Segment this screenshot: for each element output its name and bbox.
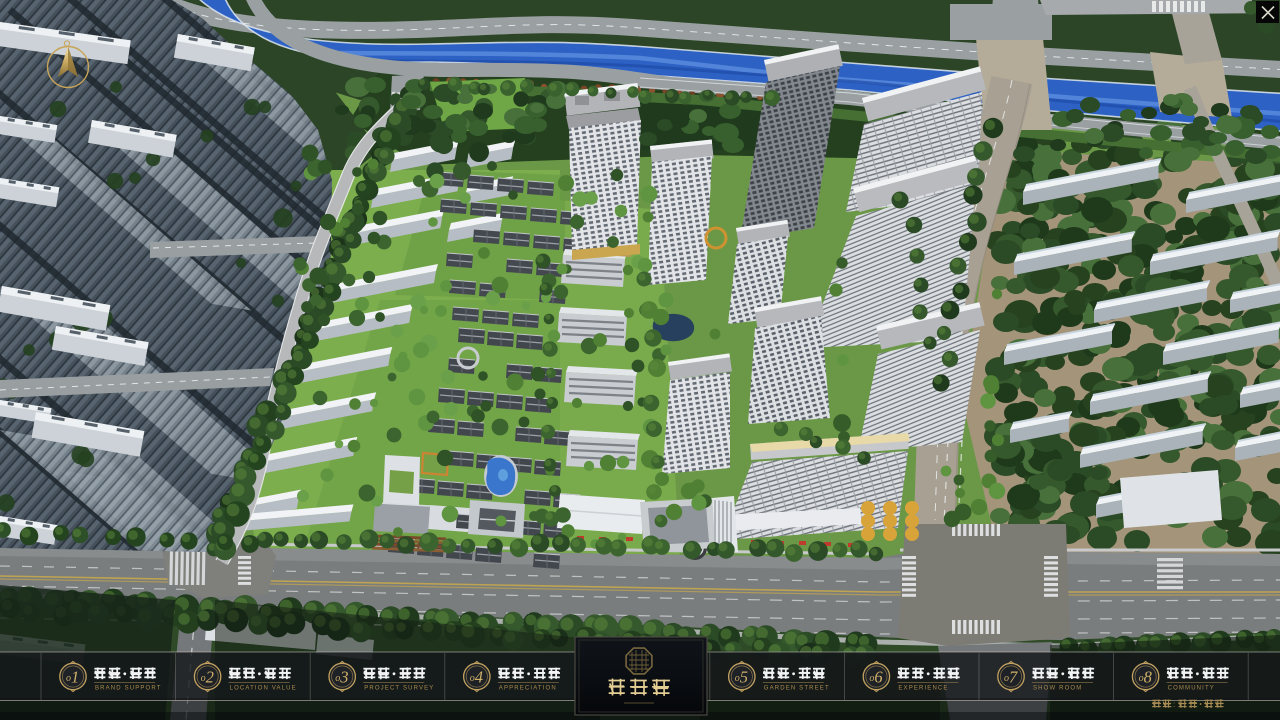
svg-text::: : [1173, 700, 1175, 709]
svg-text:2: 2 [206, 668, 214, 687]
svg-text:4: 4 [475, 668, 483, 687]
svg-text:8: 8 [1144, 668, 1153, 687]
svg-text:APPRECIATION: APPRECIATION [499, 686, 557, 692]
svg-text:LOCATION VALUE: LOCATION VALUE [230, 686, 297, 692]
svg-text:EXPERIENCE: EXPERIENCE [898, 686, 948, 692]
svg-text:6: 6 [874, 668, 883, 687]
svg-text:BRAND SUPPORT: BRAND SUPPORT [95, 686, 162, 692]
svg-text:3: 3 [339, 668, 348, 687]
svg-text:PROJECT SURVEY: PROJECT SURVEY [364, 686, 434, 692]
svg-text:5: 5 [740, 668, 748, 687]
svg-text:1: 1 [71, 668, 79, 687]
svg-text:COMMUNITY: COMMUNITY [1168, 686, 1215, 692]
svg-text:GARDEN STREET: GARDEN STREET [764, 686, 830, 692]
svg-text:SHOW ROOM: SHOW ROOM [1033, 686, 1082, 692]
svg-text:7: 7 [1009, 668, 1018, 687]
